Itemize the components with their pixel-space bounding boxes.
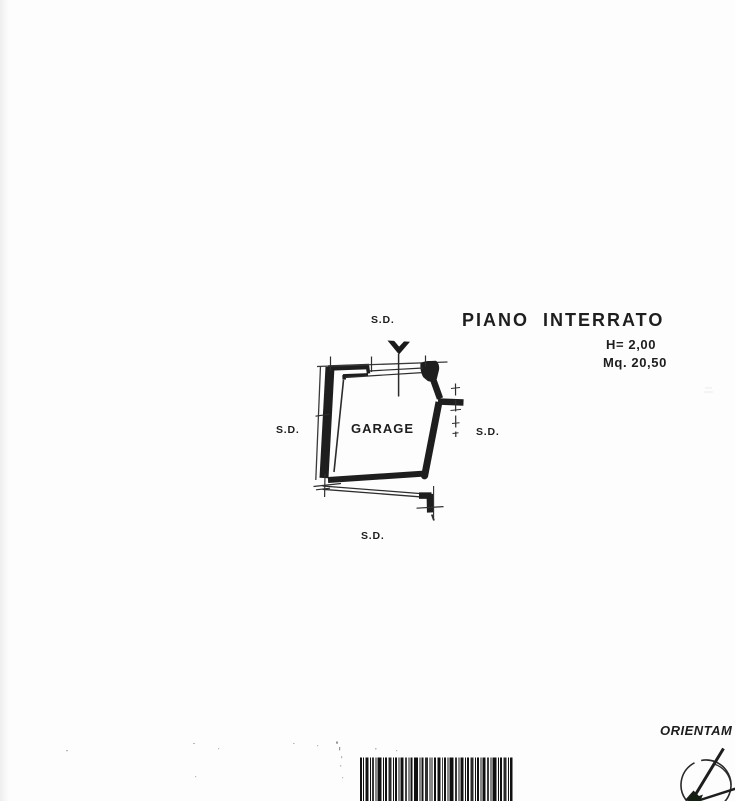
sd-label-right: S.D. [476, 426, 500, 438]
scanned-floorplan-page: PIANO INTERRATO H= 2,00 Mq. 20,50 GARAGE… [0, 0, 735, 801]
compass-icon [671, 749, 735, 801]
garage-room-label: GARAGE [351, 421, 414, 436]
sd-label-left: S.D. [276, 424, 300, 436]
plan-height-label: H= 2,00 [606, 337, 656, 352]
scan-specks [66, 388, 713, 778]
entrance-arrow-icon [388, 339, 411, 397]
floorplan-drawing: PIANO INTERRATO H= 2,00 Mq. 20,50 GARAGE… [0, 0, 735, 801]
lower-boundary-wall [323, 486, 444, 521]
barcode [360, 758, 513, 801]
orientation-label: ORIENTAM [660, 723, 733, 738]
sd-label-top: S.D. [371, 314, 395, 326]
right-boundary-line [451, 384, 462, 438]
plan-title: PIANO INTERRATO [462, 310, 664, 330]
plan-area-label: Mq. 20,50 [603, 355, 667, 370]
sd-label-bottom: S.D. [361, 530, 385, 542]
